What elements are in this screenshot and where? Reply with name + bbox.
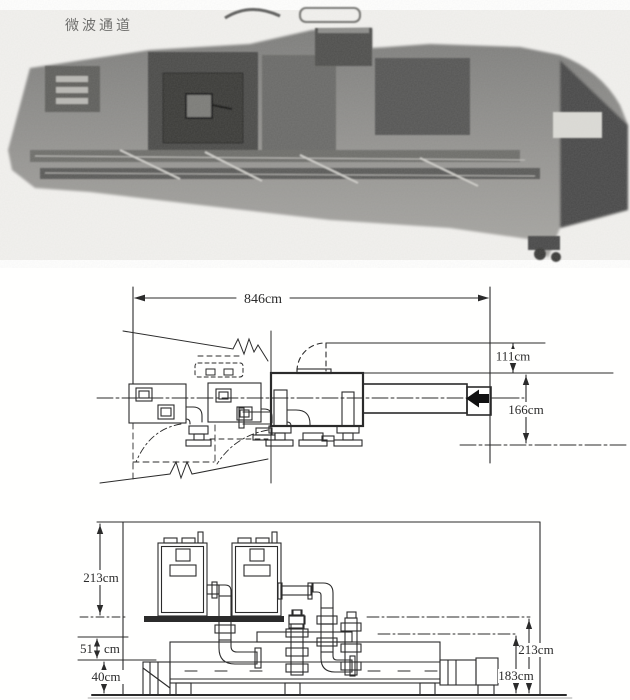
scanned-figure-page: 微波通道 846cm xyxy=(0,0,630,700)
dim-length-label: 846cm xyxy=(244,292,282,307)
dim-overall-length: 846cm xyxy=(133,287,490,463)
side-cabinet-2 xyxy=(232,532,281,616)
photocopy-grain xyxy=(0,0,630,268)
dim-gap-unit: cm xyxy=(104,641,120,656)
plan-cabinet-left xyxy=(129,384,186,423)
flow-arrow-icon xyxy=(466,390,489,408)
side-pipe-cab1 xyxy=(207,582,261,668)
dim-gap-value: 51 xyxy=(80,641,93,656)
plan-view-drawing: 846cm xyxy=(0,276,630,498)
dim-body-height-label: 183cm xyxy=(498,668,533,683)
side-cabinet-1 xyxy=(158,532,207,616)
plan-dashed-cluster xyxy=(195,356,243,377)
dim-cabinet-height-label: 213cm xyxy=(83,570,118,585)
plan-main-unit xyxy=(271,343,524,426)
side-view-drawing: 213cm 51 cm 40cm xyxy=(0,498,630,700)
plan-cabinet-right xyxy=(208,383,261,422)
dim-base-height: 40cm xyxy=(88,662,124,693)
dim-upper-width-label: 111cm xyxy=(496,349,530,364)
equipment-photo: 微波通道 xyxy=(0,0,630,268)
dim-total-height-label: 213cm xyxy=(518,642,553,657)
dim-base-height-label: 40cm xyxy=(92,669,121,684)
dim-gap: 51 cm xyxy=(78,637,156,660)
side-pipe-stack-2 xyxy=(341,612,361,675)
plan-piping-left xyxy=(186,407,275,446)
cabinet-base-plate xyxy=(144,616,284,622)
dim-total-width-label: 166cm xyxy=(508,402,543,417)
dim-cabinet-height: 213cm xyxy=(80,524,126,617)
plan-dashed-room xyxy=(133,423,268,483)
photo-label: 微波通道 xyxy=(65,18,133,34)
